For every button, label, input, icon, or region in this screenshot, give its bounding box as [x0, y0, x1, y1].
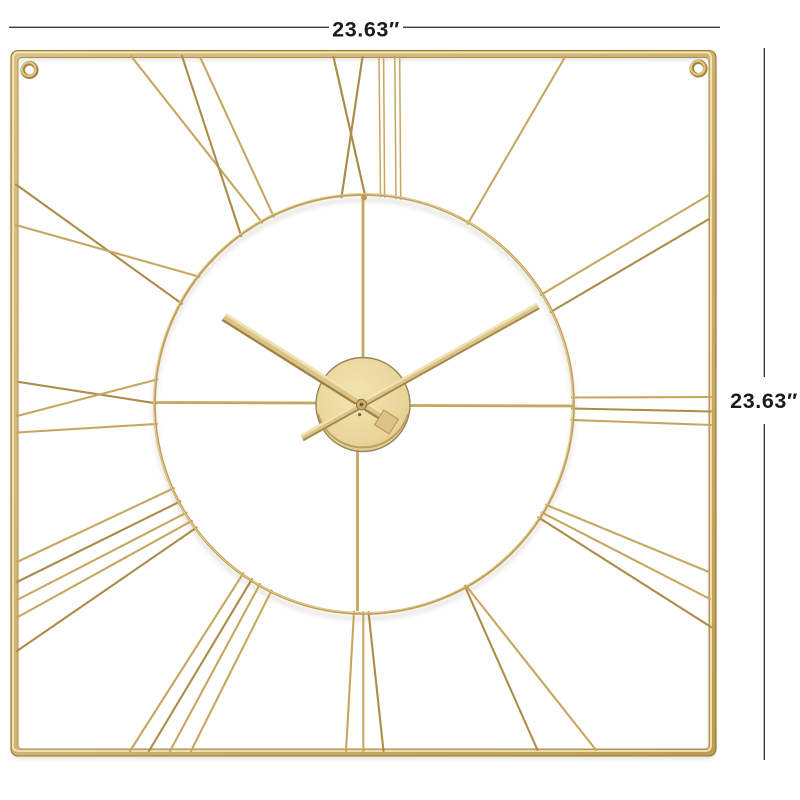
svg-text:23.63″: 23.63″	[730, 389, 798, 413]
svg-text:23.63″: 23.63″	[332, 18, 400, 42]
